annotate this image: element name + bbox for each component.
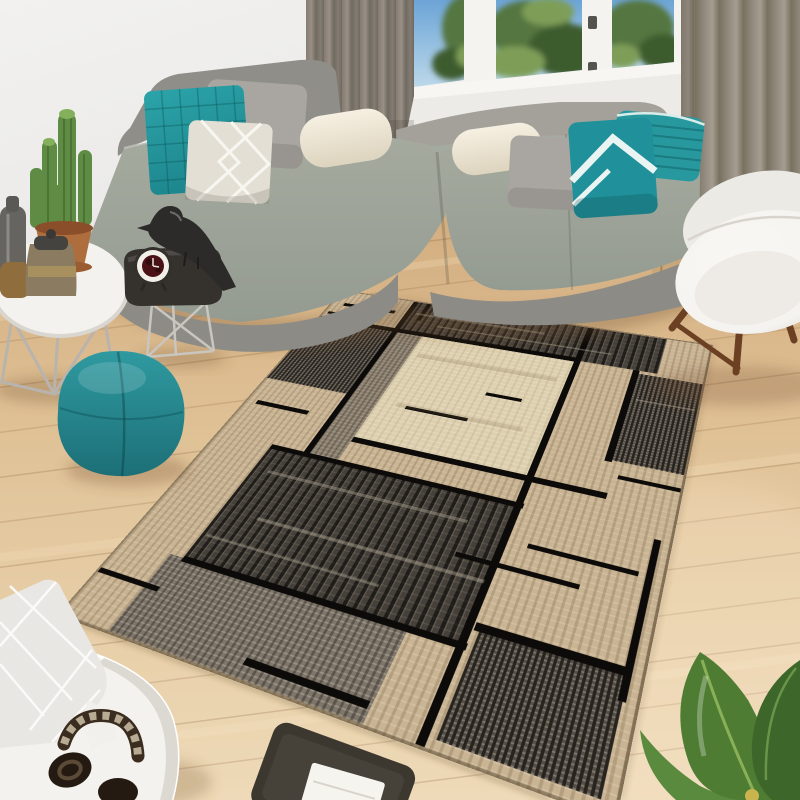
furniture-layer	[0, 0, 800, 800]
clock-hand	[153, 266, 159, 267]
potted-plant-leaves	[640, 652, 800, 800]
teal-pouf	[58, 351, 185, 476]
pillow-teal-diamond	[568, 117, 658, 219]
floor-pillow-white	[0, 580, 118, 748]
living-room-photo	[0, 0, 800, 800]
amber-jar	[0, 262, 30, 298]
pillow-cream-diamond	[185, 120, 273, 204]
leaf	[752, 660, 800, 800]
